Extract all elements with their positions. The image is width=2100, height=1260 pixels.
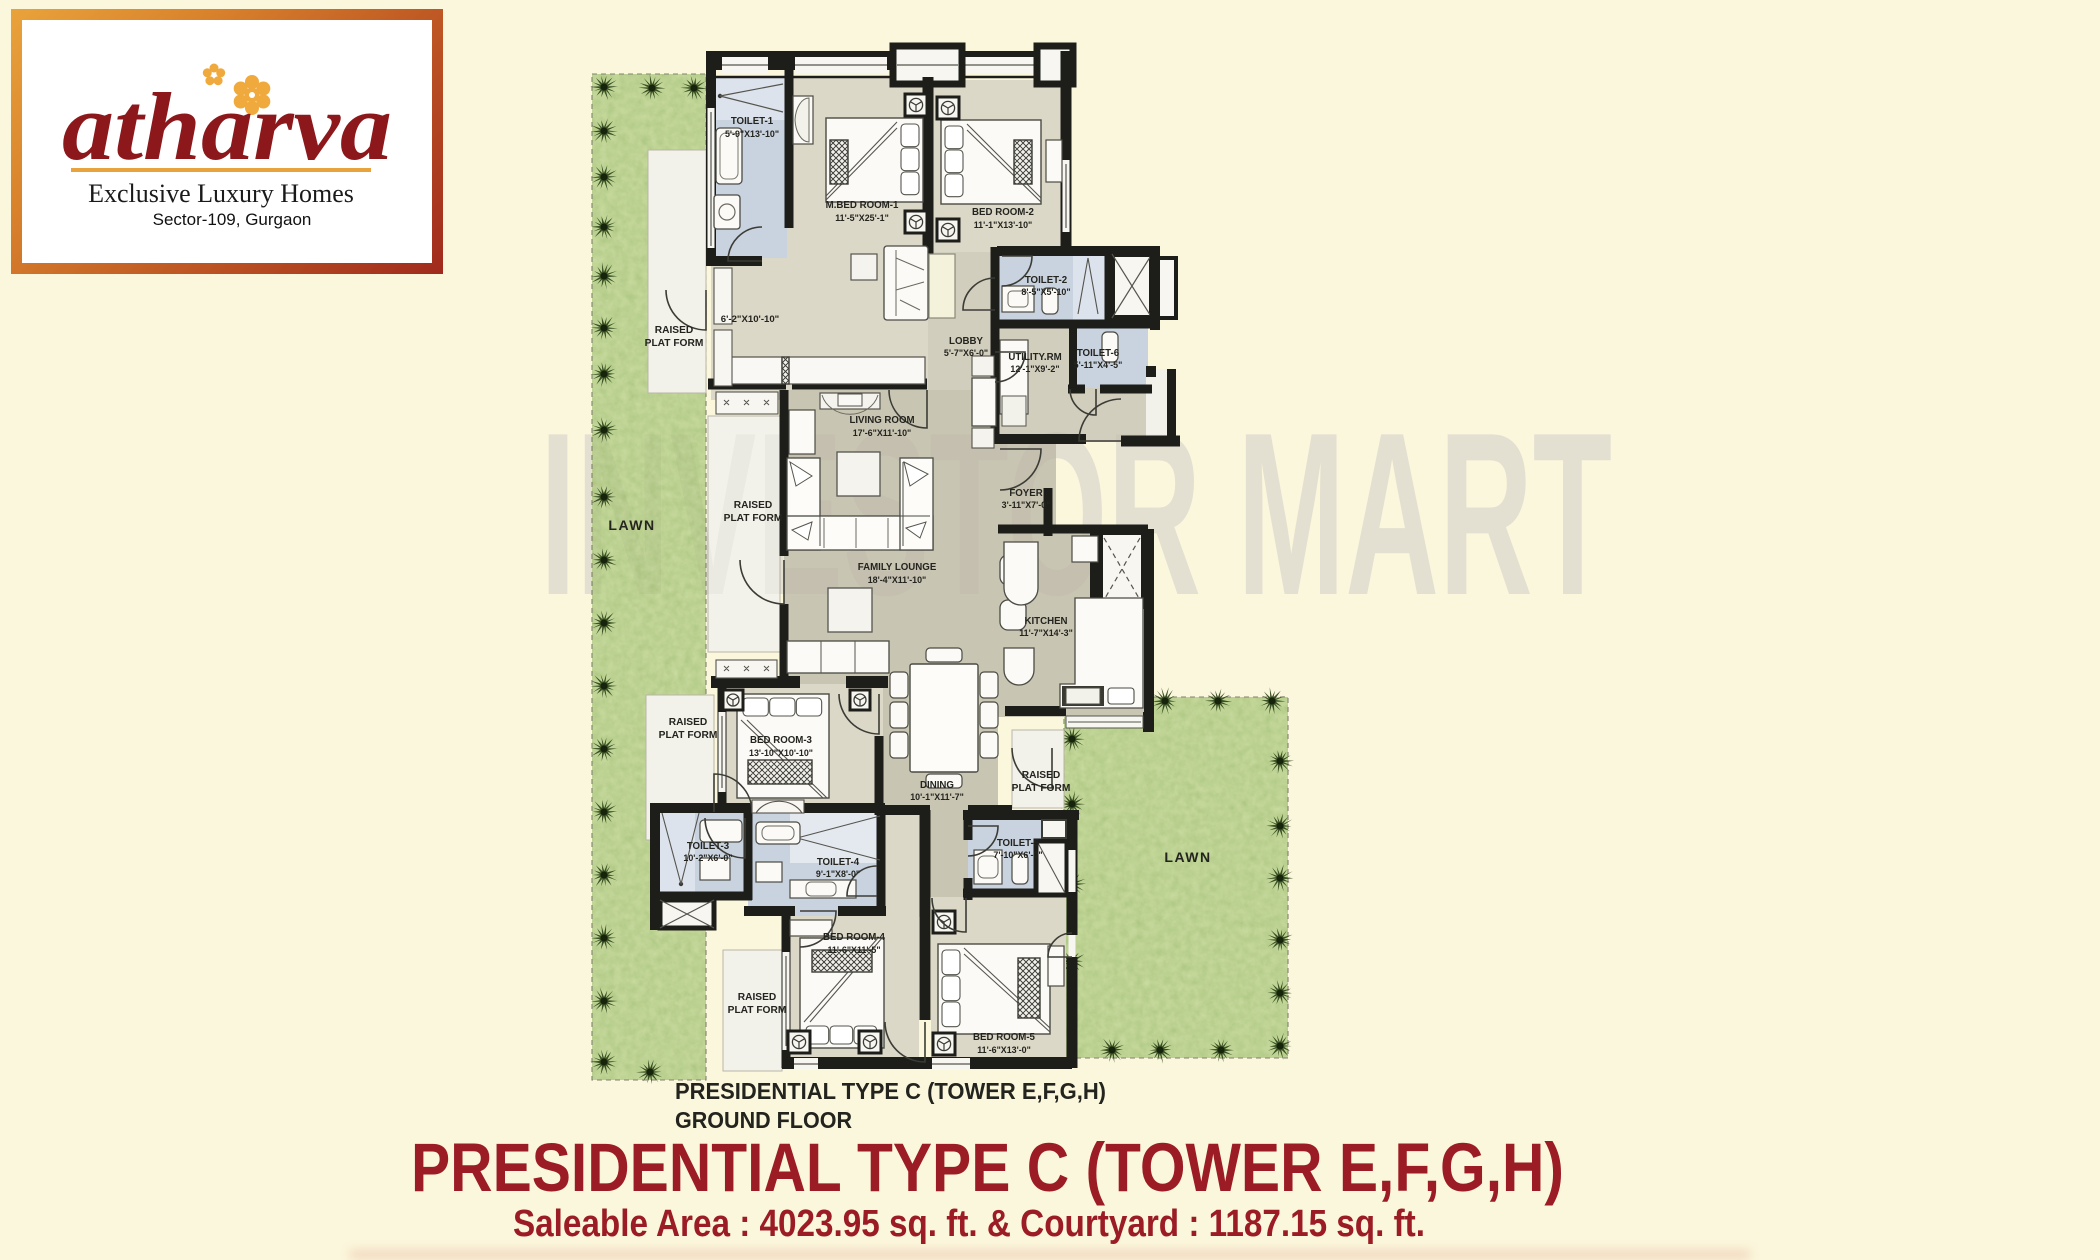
svg-text:LAWN: LAWN (1164, 849, 1211, 865)
svg-text:M.BED ROOM-1: M.BED ROOM-1 (826, 200, 899, 211)
svg-text:5'-9"X13'-10": 5'-9"X13'-10" (725, 129, 779, 139)
svg-text:BED ROOM-5: BED ROOM-5 (973, 1032, 1036, 1043)
svg-text:RAISED: RAISED (655, 325, 694, 336)
svg-text:11'-7"X14'-3": 11'-7"X14'-3" (1019, 628, 1073, 638)
svg-text:TOILET-6: TOILET-6 (1077, 348, 1120, 359)
svg-text:8'-5"X5'-10": 8'-5"X5'-10" (1021, 287, 1070, 297)
svg-text:Sector-109, Gurgaon: Sector-109, Gurgaon (153, 210, 312, 229)
svg-text:RAISED: RAISED (1022, 770, 1061, 781)
svg-text:RAISED: RAISED (669, 717, 708, 728)
svg-text:PLAT FORM: PLAT FORM (724, 513, 783, 524)
svg-text:FAMILY LOUNGE: FAMILY LOUNGE (858, 562, 937, 573)
svg-text:DINING: DINING (920, 780, 954, 791)
svg-text:TOILET-1: TOILET-1 (731, 116, 774, 127)
svg-text:17'-6"X11'-10": 17'-6"X11'-10" (853, 428, 912, 438)
svg-text:LIVING ROOM: LIVING ROOM (849, 415, 914, 426)
svg-text:TOILET-5: TOILET-5 (997, 838, 1040, 849)
svg-text:TOILET-3: TOILET-3 (687, 841, 730, 852)
svg-text:6'-2"X10'-10": 6'-2"X10'-10" (721, 314, 779, 325)
svg-text:RAISED: RAISED (734, 500, 773, 511)
svg-text:PLAT FORM: PLAT FORM (728, 1005, 787, 1016)
svg-text:PRESIDENTIAL TYPE C (TOWER E,F: PRESIDENTIAL TYPE C (TOWER E,F,G,H) (675, 1078, 1106, 1104)
svg-text:10'-2"X6'-0": 10'-2"X6'-0" (683, 853, 732, 863)
svg-text:11'-5"X25'-1": 11'-5"X25'-1" (835, 213, 889, 223)
svg-text:12'-1"X9'-2": 12'-1"X9'-2" (1010, 364, 1059, 374)
svg-text:BED ROOM-2: BED ROOM-2 (972, 207, 1034, 218)
svg-text:PLAT FORM: PLAT FORM (645, 338, 704, 349)
svg-text:9'-1"X8'-0": 9'-1"X8'-0" (816, 869, 860, 879)
svg-text:BED ROOM-4: BED ROOM-4 (823, 932, 886, 943)
svg-text:13'-10"X10'-10": 13'-10"X10'-10" (749, 748, 813, 758)
svg-text:UTILITY.RM: UTILITY.RM (1008, 352, 1061, 363)
svg-text:PLAT FORM: PLAT FORM (1012, 783, 1071, 794)
svg-text:atharva: atharva (62, 73, 392, 180)
svg-text:LOBBY: LOBBY (949, 336, 983, 347)
svg-text:BED ROOM-3: BED ROOM-3 (750, 735, 813, 746)
svg-text:18'-4"X11'-10": 18'-4"X11'-10" (868, 575, 927, 585)
svg-text:5'-11"X4'-5": 5'-11"X4'-5" (1074, 360, 1123, 370)
svg-text:3'-11"X7'-0": 3'-11"X7'-0" (1002, 500, 1051, 510)
svg-text:11'-1"X13'-10": 11'-1"X13'-10" (974, 220, 1033, 230)
svg-text:11'-6"X13'-0": 11'-6"X13'-0" (977, 1045, 1031, 1055)
svg-text:TOILET-4: TOILET-4 (817, 857, 860, 868)
svg-text:10'-1"X11'-7": 10'-1"X11'-7" (910, 792, 964, 802)
svg-text:Exclusive Luxury Homes: Exclusive Luxury Homes (88, 179, 354, 208)
svg-text:7'-10"X6'-0": 7'-10"X6'-0" (993, 850, 1042, 860)
svg-text:TOILET-2: TOILET-2 (1025, 275, 1067, 286)
svg-text:Saleable Area : 4023.95 sq. ft: Saleable Area : 4023.95 sq. ft. & Courty… (513, 1203, 1425, 1245)
svg-text:11'-6"X11'-5": 11'-6"X11'-5" (827, 945, 880, 955)
svg-text:PLAT FORM: PLAT FORM (659, 730, 718, 741)
svg-text:KITCHEN: KITCHEN (1024, 616, 1067, 627)
svg-text:FOYER: FOYER (1009, 488, 1042, 499)
svg-text:PRESIDENTIAL TYPE C (TOWER E,F: PRESIDENTIAL TYPE C (TOWER E,F,G,H) (411, 1129, 1564, 1206)
svg-text:5'-7"X6'-0": 5'-7"X6'-0" (944, 348, 988, 358)
svg-text:RAISED: RAISED (738, 992, 777, 1003)
